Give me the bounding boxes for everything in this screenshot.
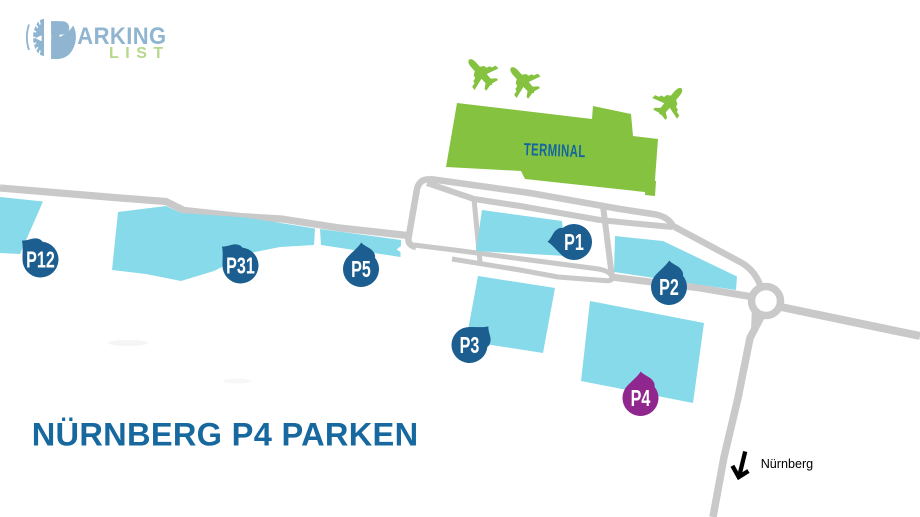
svg-text:P5: P5 <box>351 258 371 283</box>
svg-text:P3: P3 <box>460 334 480 359</box>
svg-text:TERMINAL: TERMINAL <box>523 141 585 162</box>
svg-text:P4: P4 <box>631 387 651 412</box>
svg-text:P2: P2 <box>659 276 679 301</box>
svg-text:LIST: LIST <box>109 45 170 62</box>
svg-text:NÜRNBERG P4 PARKEN: NÜRNBERG P4 PARKEN <box>32 416 419 453</box>
svg-text:P31: P31 <box>226 254 255 279</box>
svg-text:P12: P12 <box>26 248 55 273</box>
svg-text:Nürnberg: Nürnberg <box>761 457 814 471</box>
svg-text:P1: P1 <box>564 231 584 256</box>
